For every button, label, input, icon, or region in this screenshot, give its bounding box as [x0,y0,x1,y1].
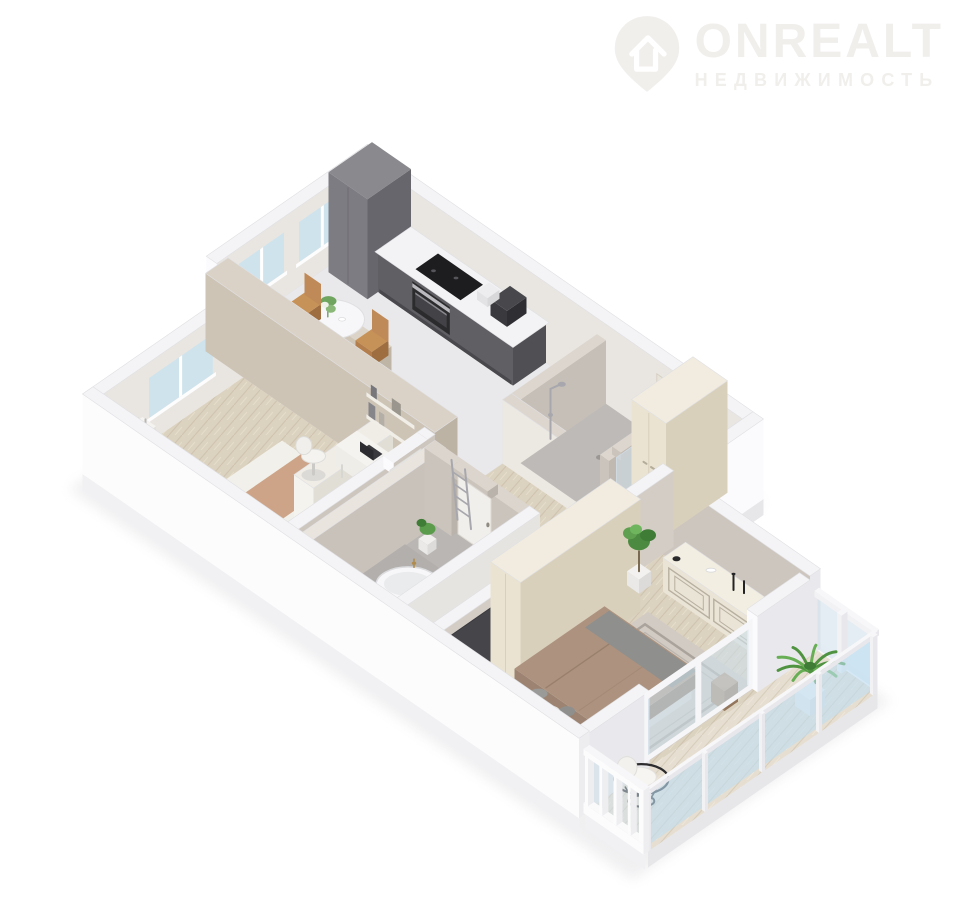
floorplan-3d-canvas [0,0,960,910]
page: { "watermark": { "brand": "ONREALT", "ta… [0,0,960,910]
floorplan-render: ONREALT НЕДВИЖИМОСТЬ [0,0,960,910]
